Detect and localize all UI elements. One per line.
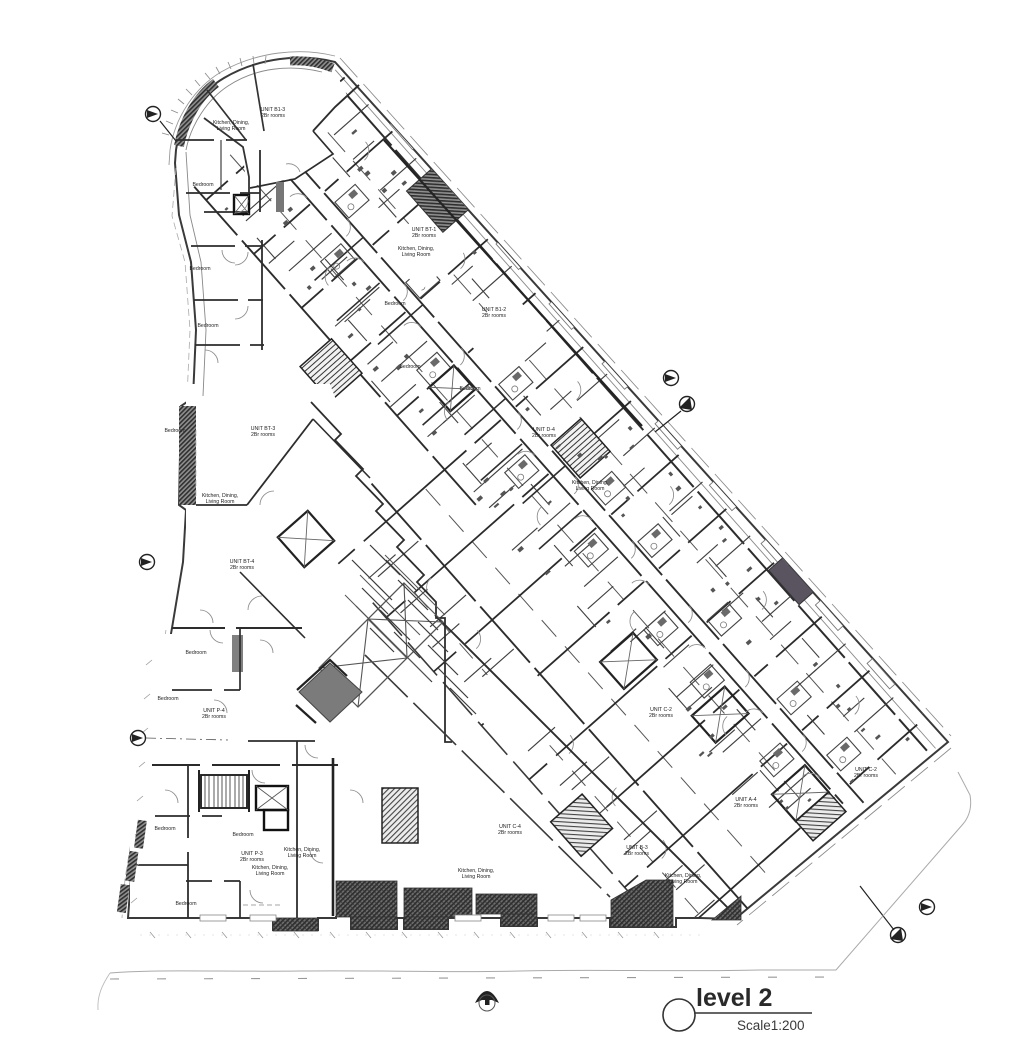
svg-text:UNIT D-42Br rooms: UNIT D-42Br rooms — [532, 427, 556, 439]
svg-text:Kitchen, Dining,Living Room: Kitchen, Dining,Living Room — [213, 120, 249, 132]
svg-text:Kitchen, Dining,Living Room: Kitchen, Dining,Living Room — [572, 480, 608, 492]
svg-text:Kitchen, Dining,Living Room: Kitchen, Dining,Living Room — [202, 493, 238, 505]
svg-text:UNIT B1-32Br rooms: UNIT B1-32Br rooms — [261, 107, 286, 119]
svg-text:Bedroom: Bedroom — [384, 301, 405, 307]
svg-text:UNIT C-22Br rooms: UNIT C-22Br rooms — [649, 707, 673, 719]
svg-text:Bedroom: Bedroom — [197, 323, 218, 329]
svg-text:UNIT BT-32Br rooms: UNIT BT-32Br rooms — [251, 426, 276, 438]
svg-text:Kitchen, Dining,Living Room: Kitchen, Dining,Living Room — [458, 868, 494, 880]
svg-text:Bedroom: Bedroom — [189, 266, 210, 272]
svg-text:UNIT P-32Br rooms: UNIT P-32Br rooms — [240, 851, 264, 863]
svg-text:Bedroom: Bedroom — [154, 826, 175, 832]
svg-text:Kitchen, Dining,Living Room: Kitchen, Dining,Living Room — [665, 873, 701, 885]
svg-text:Scale1:200: Scale1:200 — [737, 1018, 805, 1033]
svg-text:UNIT C-22Br rooms: UNIT C-22Br rooms — [854, 767, 878, 779]
svg-text:Bedroom: Bedroom — [164, 428, 185, 434]
svg-text:UNIT B1-22Br rooms: UNIT B1-22Br rooms — [482, 307, 507, 319]
svg-text:UNIT P-42Br rooms: UNIT P-42Br rooms — [202, 708, 226, 720]
svg-text:Bedroom: Bedroom — [185, 650, 206, 656]
svg-text:Bedroom: Bedroom — [192, 182, 213, 188]
svg-text:UNIT C-42Br rooms: UNIT C-42Br rooms — [498, 824, 522, 836]
svg-text:Bedroom: Bedroom — [157, 696, 178, 702]
svg-text:Kitchen, Dining,Living Room: Kitchen, Dining,Living Room — [284, 847, 320, 859]
svg-text:Bedroom: Bedroom — [232, 832, 253, 838]
svg-text:UNIT B-32Br rooms: UNIT B-32Br rooms — [625, 845, 649, 857]
svg-text:Bedroom: Bedroom — [399, 364, 420, 370]
svg-text:Kitchen, Dining,Living Room: Kitchen, Dining,Living Room — [398, 246, 434, 258]
svg-text:Bedroom: Bedroom — [175, 901, 196, 907]
svg-text:Kitchen, Dining,Living Room: Kitchen, Dining,Living Room — [252, 865, 288, 877]
svg-text:UNIT BT-42Br rooms: UNIT BT-42Br rooms — [230, 559, 255, 571]
svg-text:Bedroom: Bedroom — [459, 386, 480, 392]
svg-text:level 2: level 2 — [696, 984, 772, 1012]
svg-text:UNIT BT-12Br rooms: UNIT BT-12Br rooms — [412, 227, 437, 239]
svg-text:UNIT A-42Br rooms: UNIT A-42Br rooms — [734, 797, 758, 809]
